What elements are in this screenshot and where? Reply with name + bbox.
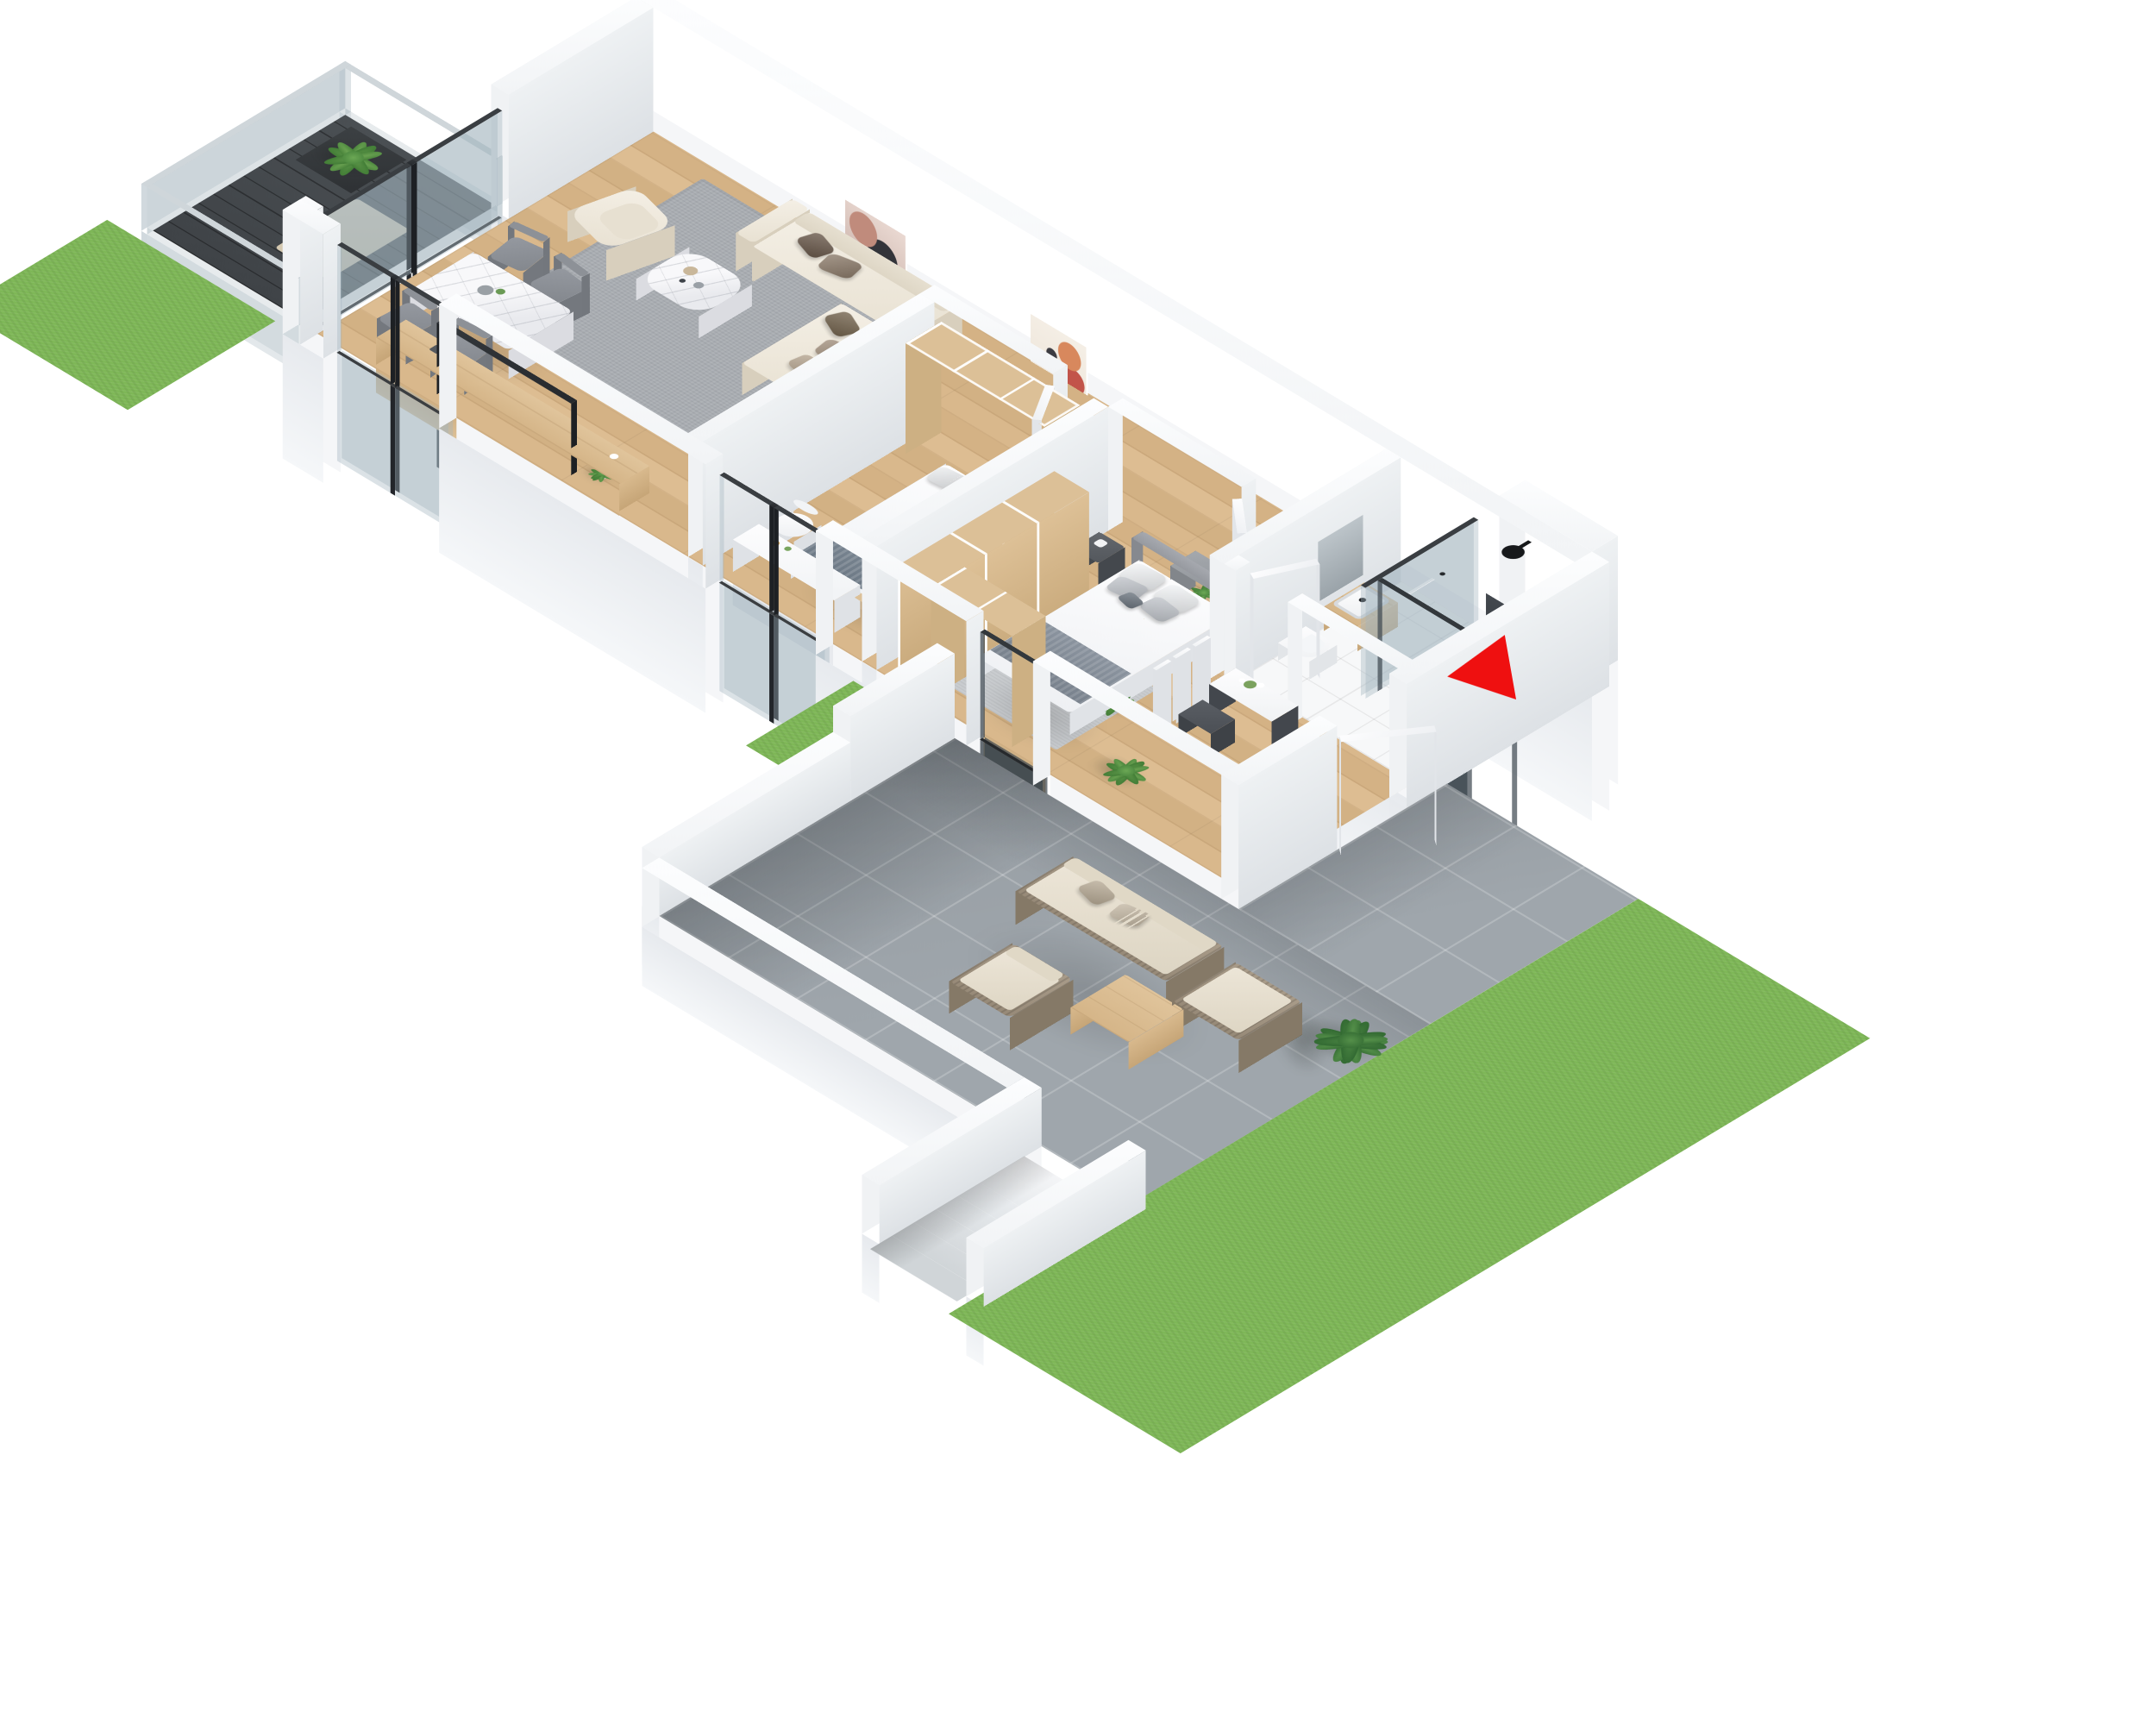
floor-plan-render: [0, 0, 2156, 1725]
entrance-arrow-icon: [1442, 635, 1516, 711]
